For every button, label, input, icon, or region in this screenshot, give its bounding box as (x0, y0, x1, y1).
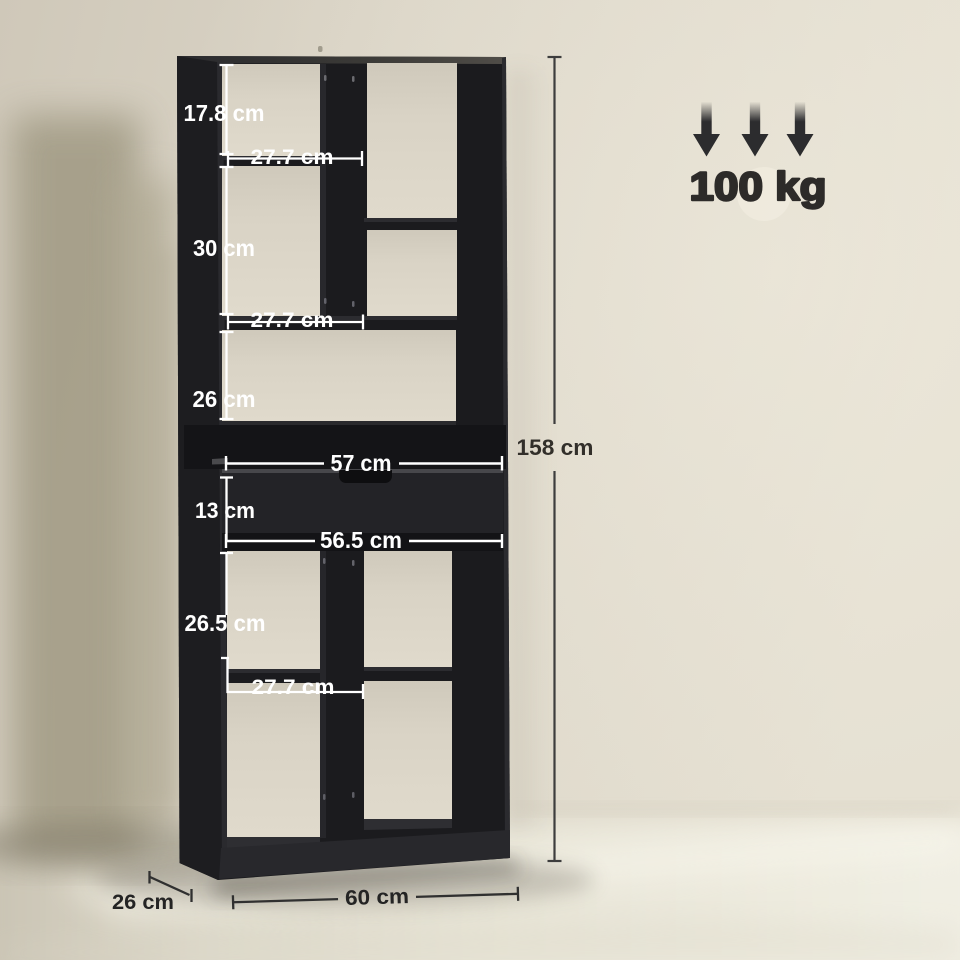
svg-text:27.7 cm: 27.7 cm (251, 145, 334, 169)
svg-text:26 cm: 26 cm (193, 386, 256, 412)
svg-text:17.8 cm: 17.8 cm (184, 100, 265, 126)
svg-text:158 cm: 158 cm (517, 435, 594, 460)
svg-text:60 cm: 60 cm (345, 885, 410, 910)
svg-text:26 cm: 26 cm (112, 891, 174, 914)
svg-text:57 cm: 57 cm (331, 450, 392, 476)
svg-text:27.7 cm: 27.7 cm (252, 675, 335, 699)
svg-text:56.5 cm: 56.5 cm (320, 527, 402, 553)
svg-text:13 cm: 13 cm (195, 498, 255, 523)
svg-text:27.7 cm: 27.7 cm (251, 308, 334, 332)
svg-text:26.5 cm: 26.5 cm (185, 610, 266, 636)
svg-text:30 cm: 30 cm (193, 235, 255, 261)
svg-text:100 kg: 100 kg (690, 165, 827, 209)
